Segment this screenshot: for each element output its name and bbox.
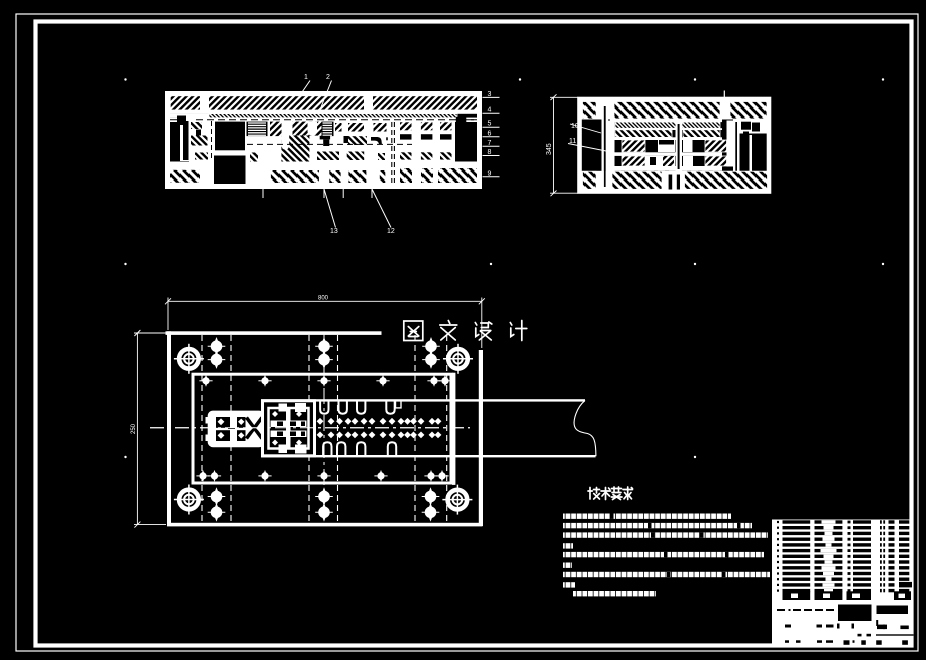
svg-text:13: 13 xyxy=(330,228,338,235)
svg-text:7: 7 xyxy=(488,140,492,147)
svg-text:6: 6 xyxy=(488,130,492,137)
svg-text:4: 4 xyxy=(488,107,492,114)
svg-text:250: 250 xyxy=(131,423,137,434)
svg-text:3: 3 xyxy=(488,91,492,98)
svg-text:8: 8 xyxy=(488,149,492,156)
svg-text:1: 1 xyxy=(304,74,308,81)
svg-text:12: 12 xyxy=(387,228,395,235)
svg-text:9: 9 xyxy=(488,170,492,177)
svg-text:800: 800 xyxy=(318,296,329,302)
svg-text:2: 2 xyxy=(326,74,330,81)
svg-text:5: 5 xyxy=(488,121,492,128)
svg-text:345: 345 xyxy=(546,143,553,155)
